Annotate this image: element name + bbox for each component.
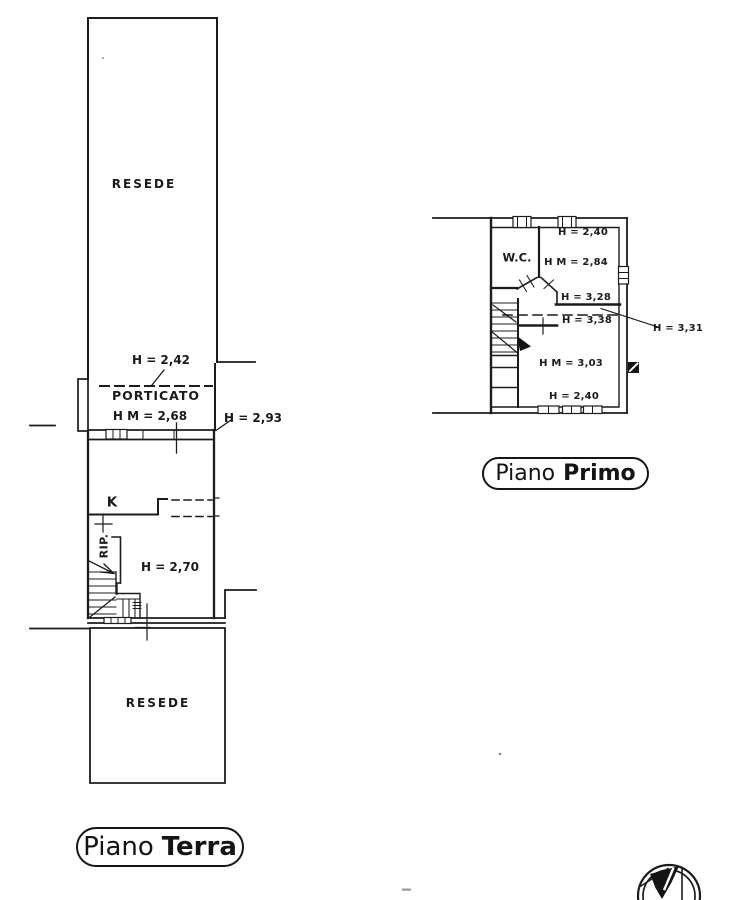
- wc-label: W.C.: [503, 252, 532, 264]
- storage-label: RIP.: [99, 534, 110, 559]
- caption-word-piano2: Piano: [495, 461, 555, 486]
- plan-linework: [0, 0, 732, 900]
- caption-word-piano: Piano: [83, 832, 154, 862]
- porticato-label: PORTICATO: [112, 390, 200, 403]
- ground-floor-caption: Piano Terra: [76, 827, 244, 867]
- first-floor-plan: [433, 217, 658, 414]
- floor-plan-sheet: RESEDE H = 2,42 PORTICATO H M = 2,68 H =…: [0, 0, 732, 900]
- room-height-label: H = 2,70: [141, 561, 199, 573]
- height-338-label: H = 3,38: [562, 316, 612, 326]
- porticato-height-note: H = 2,42: [132, 354, 190, 366]
- north-arrow-icon: [638, 865, 700, 900]
- resede-top-label: RESEDE: [112, 178, 176, 190]
- caption-word-primo: Primo: [563, 461, 636, 486]
- living-mean-height-label: H M = 3,03: [539, 359, 603, 369]
- first-floor-caption: Piano Primo: [482, 457, 649, 490]
- stair-arrow-icon: [517, 336, 531, 351]
- kitchen-label: K: [107, 496, 117, 510]
- height-328-label: H = 3,28: [561, 293, 611, 303]
- bedroom-mean-height-label: H M = 2,84: [544, 258, 608, 268]
- resede-bottom-label: RESEDE: [126, 697, 190, 709]
- porticato-mean-height: H M = 2,68: [113, 410, 187, 422]
- height-top-label: H = 2,40: [558, 228, 608, 238]
- height-331-label: H = 3,31: [653, 324, 703, 334]
- eaves-height-note: H = 2,93: [224, 412, 282, 424]
- caption-word-terra: Terra: [162, 832, 237, 862]
- height-bottom-label: H = 2,40: [549, 392, 599, 402]
